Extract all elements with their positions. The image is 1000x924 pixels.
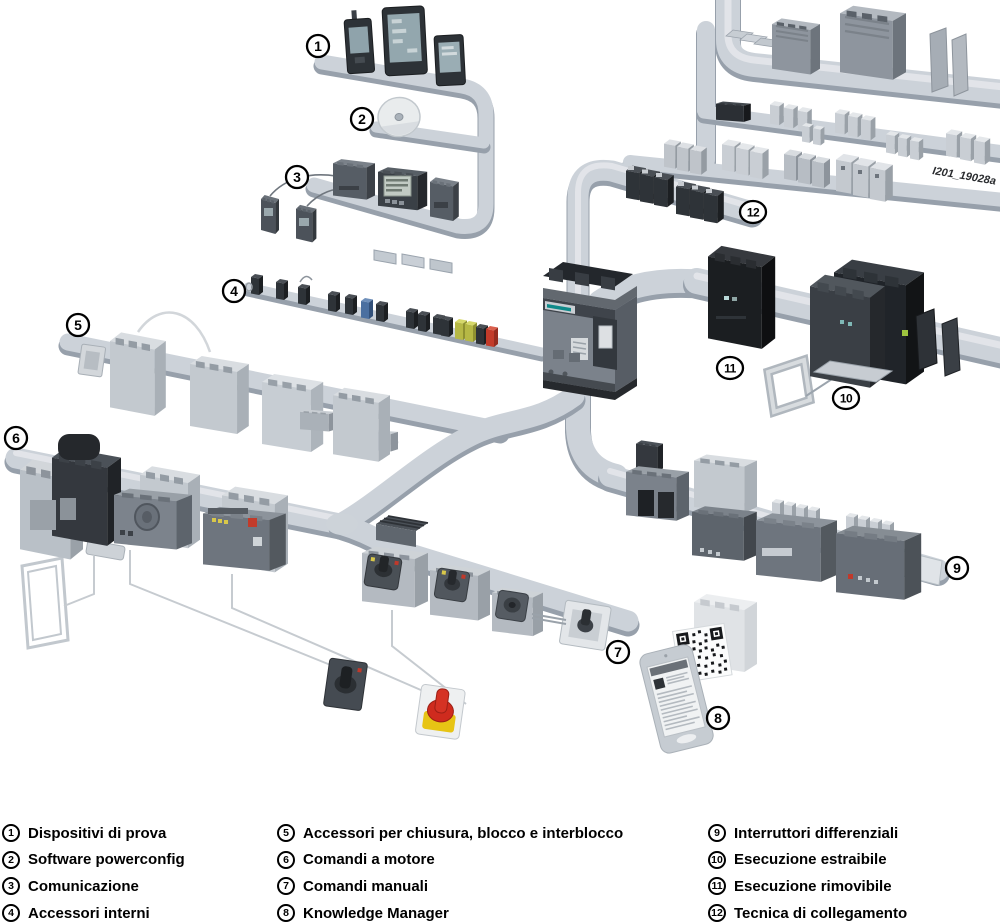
svg-text:10: 10	[840, 392, 853, 406]
legend-badge-11: 11	[708, 877, 726, 895]
legend-label-2: Software powerconfig	[28, 851, 185, 868]
terminal-block-dark	[716, 102, 751, 122]
rail-junction	[326, 513, 358, 535]
flat-connectors-5	[946, 129, 990, 164]
rcd-transformer	[626, 440, 689, 520]
mounting-plate	[78, 344, 106, 377]
emergency-handle	[415, 684, 466, 740]
legend-label-9: Interruttori differenziali	[734, 825, 898, 842]
withdrawable-breaker	[810, 260, 924, 388]
svg-text:1: 1	[314, 38, 322, 54]
terminal-cover-small	[772, 18, 820, 74]
legend-badge-12: 12	[708, 904, 726, 922]
legend-item-7: 7Comandi manuali	[277, 873, 623, 900]
callout-badge-5: 5	[67, 314, 89, 336]
wireframe-1	[64, 556, 94, 606]
legend-badge-8: 8	[277, 904, 295, 922]
rotary-breaker-3	[492, 588, 543, 636]
legend-label-10: Esecuzione estraibile	[734, 851, 887, 868]
legend-item-11: 11Esecuzione rimovibile	[708, 873, 907, 900]
legend-column-1: 1Dispositivi di prova 2Software powercon…	[2, 820, 185, 924]
legend-item-9: 9Interruttori differenziali	[708, 820, 907, 847]
test-device-large	[382, 6, 428, 76]
door-cutout-frame	[22, 558, 68, 648]
svg-text:3: 3	[293, 169, 301, 185]
legend-item-2: 2Software powerconfig	[2, 847, 185, 874]
legend-label-12: Tecnica di collegamento	[734, 905, 907, 922]
ghost-breaker-5d	[333, 388, 390, 462]
door-handle-frame	[559, 600, 611, 651]
svg-text:12: 12	[747, 206, 760, 220]
callout-badge-12: 12	[740, 201, 766, 223]
legend-badge-2: 2	[2, 851, 20, 869]
svg-text:7: 7	[614, 644, 622, 660]
svg-text:2: 2	[358, 111, 366, 127]
test-device-medium	[434, 34, 466, 85]
comm-module-small-2	[296, 205, 316, 242]
rcd-breaker-3	[836, 513, 921, 600]
legend-label-7: Comandi manuali	[303, 878, 428, 895]
legend-item-4: 4Accessori interni	[2, 900, 185, 924]
cable-lugs-2	[676, 182, 724, 224]
legend-badge-9: 9	[708, 824, 726, 842]
internal-accessories-group	[246, 274, 498, 347]
connector-tabs	[374, 250, 452, 273]
test-device-small	[343, 9, 374, 74]
callout-badge-3: 3	[286, 166, 308, 188]
legend-item-3: 3Comunicazione	[2, 873, 185, 900]
callout-badge-7: 7	[607, 641, 629, 663]
ghost-breaker-5a	[110, 332, 166, 415]
legend-badge-1: 1	[2, 824, 20, 842]
comm-module-right	[430, 177, 459, 221]
legend-badge-3: 3	[2, 877, 20, 895]
legend-label-6: Comandi a motore	[303, 851, 435, 868]
product-overview-page: I201_19028a 1 2 3 4 5 6 7 8 9 10 11 12 1…	[0, 0, 1000, 924]
rotary-breaker-2	[430, 564, 490, 620]
callout-badge-6: 6	[5, 427, 27, 449]
comm-module-large	[333, 159, 375, 200]
door-frame	[768, 360, 810, 412]
legend-item-12: 12Tecnica di collegamento	[708, 900, 907, 924]
rotary-breaker-1	[362, 547, 428, 608]
legend-badge-6: 6	[277, 851, 295, 869]
callout-badge-4: 4	[223, 280, 245, 302]
legend-label-11: Esecuzione rimovibile	[734, 878, 892, 895]
legend-badge-4: 4	[2, 904, 20, 922]
callout-badge-9: 9	[946, 557, 968, 579]
legend-item-6: 6Comandi a motore	[277, 847, 623, 874]
svg-text:5: 5	[74, 317, 82, 333]
accessory-wire-loop	[300, 276, 312, 282]
legend-column-3: 9Interruttori differenziali 10Esecuzione…	[708, 820, 907, 924]
legend-item-1: 1Dispositivi di prova	[2, 820, 185, 847]
legend-label-8: Knowledge Manager	[303, 905, 449, 922]
legend-item-5: 5Accessori per chiusura, blocco e interb…	[277, 820, 623, 847]
image-watermark: I201_19028a	[932, 165, 997, 187]
callout-badge-10: 10	[833, 387, 859, 409]
svg-text:6: 6	[12, 430, 20, 446]
ghost-breaker-5b	[190, 356, 249, 434]
legend-label-1: Dispositivi di prova	[28, 825, 166, 842]
svg-text:8: 8	[714, 710, 722, 726]
legend-badge-7: 7	[277, 877, 295, 895]
rcd-breaker-1	[692, 455, 757, 561]
svg-text:9: 9	[953, 560, 961, 576]
callout-badge-11: 11	[717, 357, 743, 379]
svg-text:11: 11	[724, 362, 737, 376]
legend-item-10: 10Esecuzione estraibile	[708, 847, 907, 874]
legend-label-4: Accessori interni	[28, 905, 150, 922]
svg-text:4: 4	[230, 283, 238, 299]
product-overview-figure: I201_19028a 1 2 3 4 5 6 7 8 9 10 11 12	[0, 0, 1000, 818]
flat-connectors-2	[802, 123, 824, 145]
legend-badge-5: 5	[277, 824, 295, 842]
door-handle-dark	[323, 658, 367, 711]
rail-internal-accessories	[248, 287, 542, 356]
legend-badge-10: 10	[708, 851, 726, 869]
legend-column-2: 5Accessori per chiusura, blocco e interb…	[277, 820, 623, 924]
legend-item-8: 8Knowledge Manager	[277, 900, 623, 924]
comm-module-small-1	[261, 195, 279, 234]
power-meter	[378, 167, 427, 210]
callout-badge-1: 1	[307, 35, 329, 57]
callout-badge-2: 2	[351, 108, 373, 130]
callout-badge-8: 8	[707, 707, 729, 729]
removable-breaker	[708, 246, 775, 349]
terminal-cover-large	[840, 6, 906, 80]
legend-label-3: Comunicazione	[28, 878, 139, 895]
legend-label-5: Accessori per chiusura, blocco e interbl…	[303, 825, 623, 842]
